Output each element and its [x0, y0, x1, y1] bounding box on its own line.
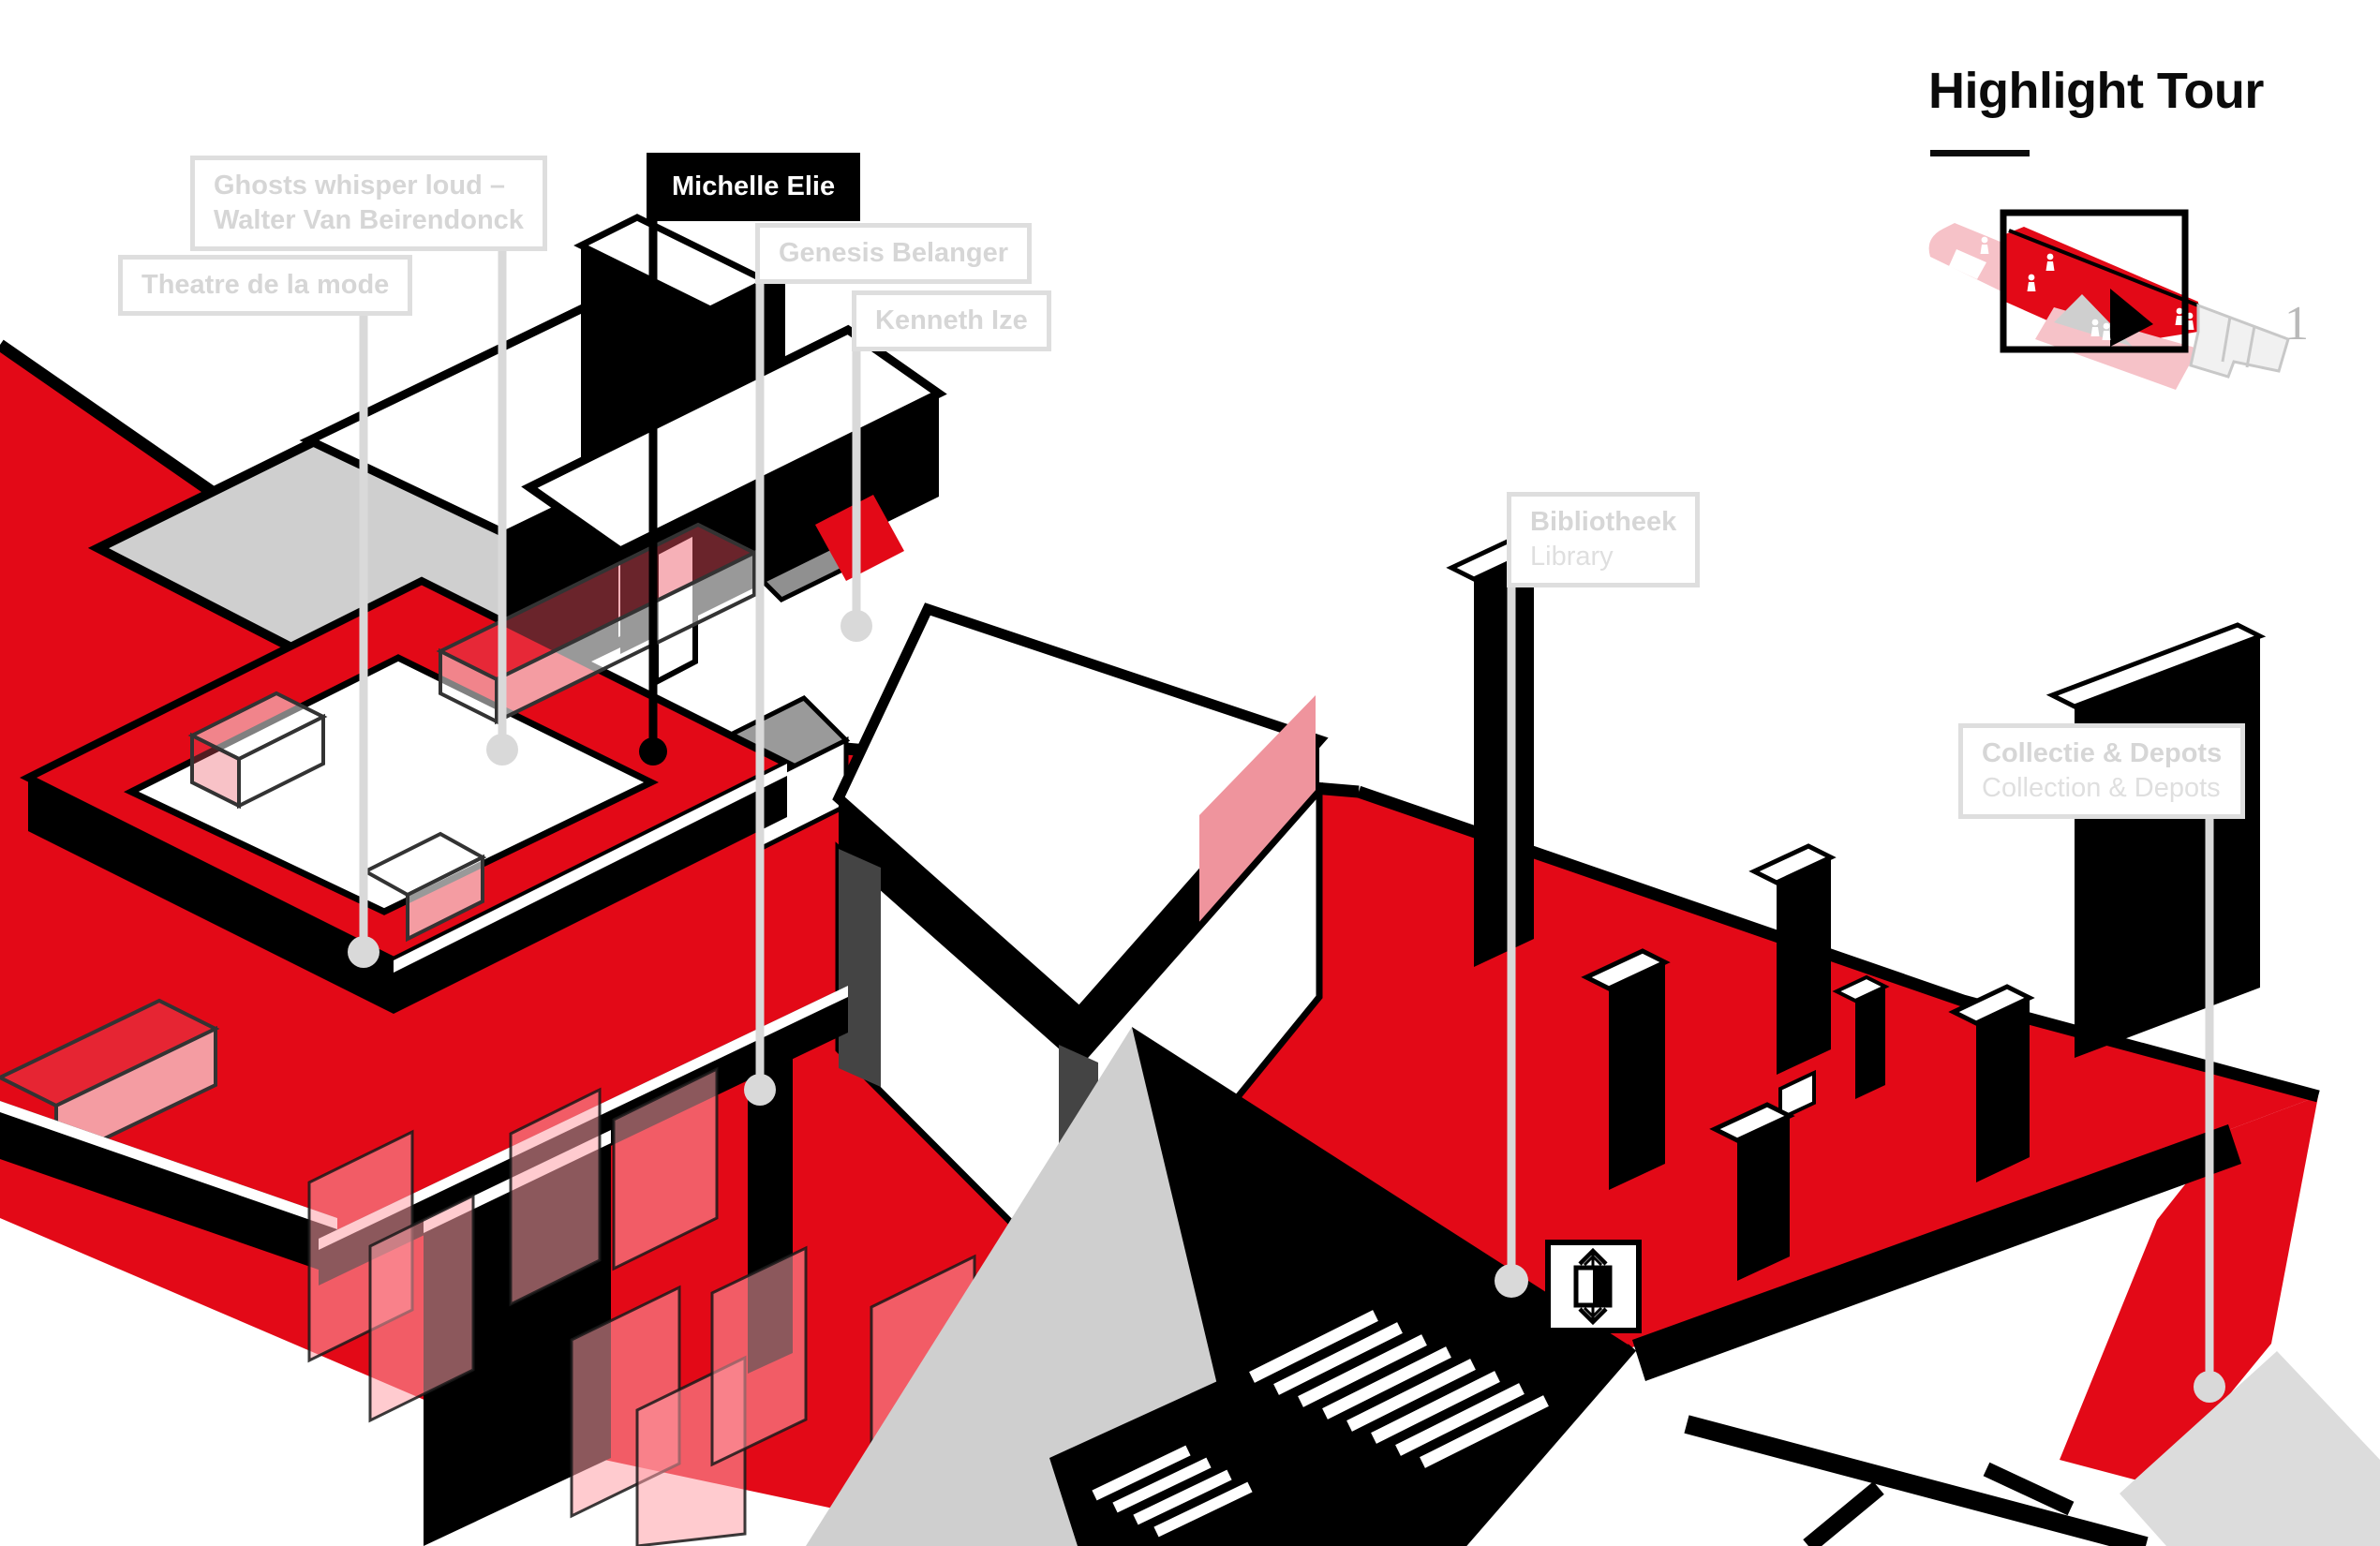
page-title: Highlight Tour — [1928, 62, 2264, 120]
elevator-icon — [1545, 1240, 1642, 1333]
tour-stop-theatre-de-la-mode[interactable]: Theatre de la mode — [118, 255, 412, 316]
stop-label-line2: Collection & Depots — [1982, 771, 2222, 806]
stop-label-line1: Michelle Elie — [672, 170, 835, 204]
title-underline — [1930, 150, 2030, 156]
stop-label-line1: Bibliotheek — [1530, 505, 1676, 540]
tour-stop-bibliotheek[interactable]: Bibliotheek Library — [1507, 492, 1700, 587]
stop-label-line1: Collectie & Depots — [1982, 736, 2222, 771]
tour-stop-collectie-depots[interactable]: Collectie & Depots Collection & Depots — [1958, 723, 2245, 819]
tour-stop-kenneth-ize[interactable]: Kenneth Ize — [852, 290, 1051, 351]
stop-label-line1: Genesis Belanger — [779, 236, 1008, 271]
stop-label-line2: Walter Van Beirendonck — [214, 203, 524, 238]
minimap[interactable]: 1 — [1911, 208, 2361, 392]
minimap-floor-number: 1 — [2284, 297, 2309, 350]
tour-stop-ghosts-whisper-loud[interactable]: Ghosts whisper loud – Walter Van Beirend… — [190, 156, 547, 251]
minimap-right-rooms — [2191, 305, 2288, 377]
stop-label-line2: Library — [1530, 540, 1676, 574]
stop-label-line1: Theatre de la mode — [141, 268, 389, 303]
tour-stop-genesis-belanger[interactable]: Genesis Belanger — [755, 223, 1032, 284]
stop-label-line1: Ghosts whisper loud – — [214, 169, 524, 203]
stop-label-line1: Kenneth Ize — [875, 304, 1028, 338]
tour-stop-michelle-elie[interactable]: Michelle Elie — [647, 153, 860, 221]
